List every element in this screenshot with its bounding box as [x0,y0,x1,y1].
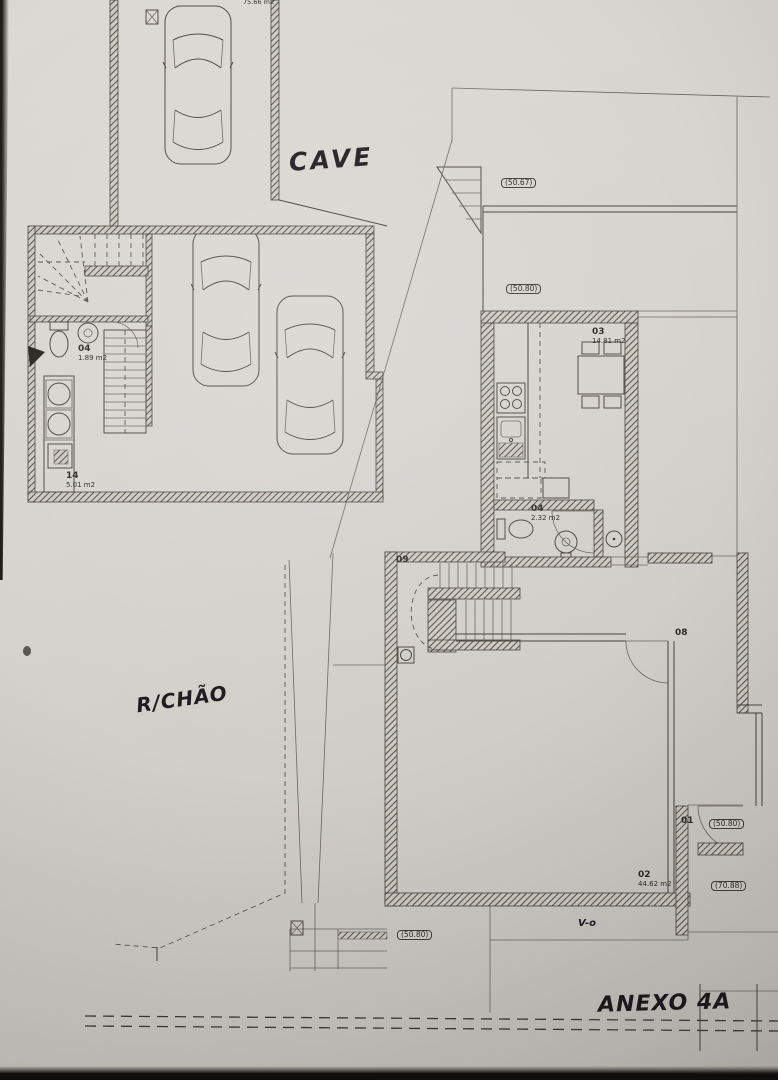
exterior-ramp-icon [437,167,481,233]
dining-table-icon [578,342,624,408]
dimension-box-entry: (50.80) [709,819,744,829]
room-label-04-wc: 04 2.32 m2 [531,505,560,523]
dimension-box-bottom: (50.80) [397,930,432,940]
room-label-03: 03 14.81 m2 [592,328,626,346]
winder-stair-icon [38,234,152,326]
column-marker-icon [606,531,622,547]
photo-edge-bottom [0,1066,778,1080]
door-leaf-icon [28,346,45,367]
stamp-icon [146,10,158,24]
room-label-09: 09 [396,556,409,566]
dimension-box-terrace-lower: (70.88) [711,881,746,891]
wc-toilet-icon [497,519,533,539]
hole-punch-mark [23,646,31,656]
room-label-01: 01 [681,817,694,827]
room-label-02: 02 44.62 m2 [638,871,672,889]
dimension-box-top: (50.67) [501,178,536,188]
total-area-label: 75.66 m2 [243,0,274,6]
water-heater-icon [398,647,414,663]
dimension-box-terrace-upper: (50.80) [506,284,541,294]
room-label-14: 14 5.01 m2 [66,472,95,490]
window-mark-label: V-o [578,918,596,929]
stair-flight-icon [104,326,152,433]
washbasin-icon [78,323,98,343]
main-stair-icon [411,563,520,652]
toilet-icon [50,322,68,357]
stove-icon [497,383,525,413]
annex-title: ANEXO 4A [598,990,732,1018]
floor-title-cave: CAVE [288,143,374,176]
kitchen-sink-icon [497,417,525,459]
wc-basin-icon [555,531,577,558]
survey-grid [157,903,387,971]
room-label-04-cave: 04 1.89 m2 [78,345,107,363]
floorplan-drawing [0,0,778,1080]
room-label-08: 08 [675,629,688,639]
